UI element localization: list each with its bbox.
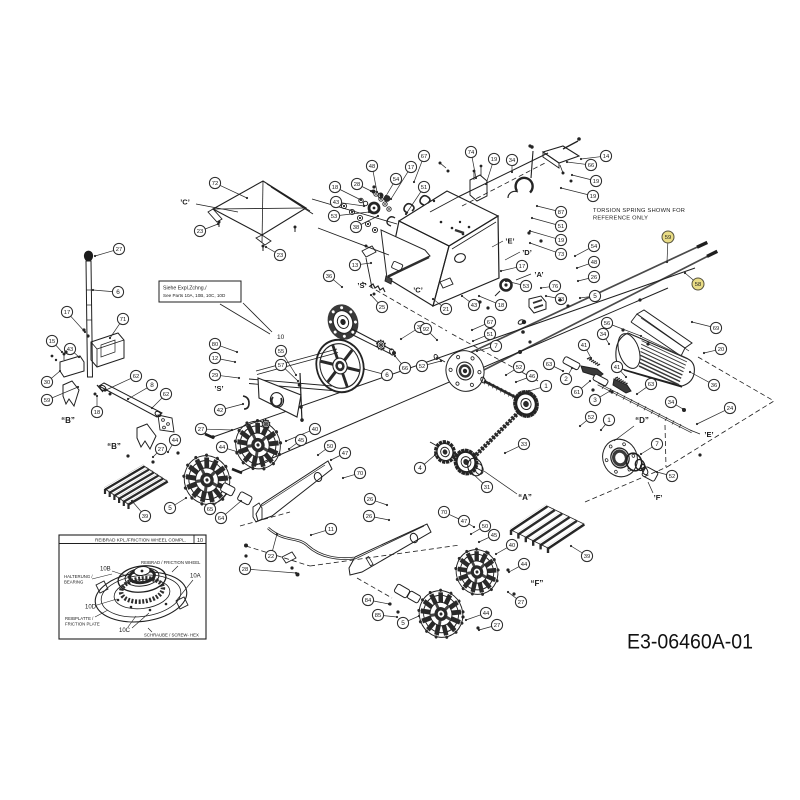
- svg-text:’E’: ’E’: [704, 430, 713, 439]
- svg-text:REIBRAD / FRICTION WHEEL: REIBRAD / FRICTION WHEEL: [141, 560, 201, 565]
- svg-text:’A’: ’A’: [534, 270, 543, 279]
- svg-text:54: 54: [591, 244, 598, 250]
- svg-text:25: 25: [379, 305, 385, 311]
- svg-text:63: 63: [648, 382, 654, 388]
- svg-text:44: 44: [219, 445, 226, 451]
- svg-text:10A: 10A: [190, 574, 201, 580]
- svg-text:44: 44: [521, 562, 528, 568]
- svg-text:36: 36: [711, 383, 717, 389]
- svg-text:20: 20: [718, 347, 724, 353]
- svg-text:66: 66: [402, 366, 408, 372]
- svg-text:40: 40: [312, 427, 318, 433]
- svg-text:48: 48: [369, 164, 375, 170]
- svg-text:30: 30: [44, 380, 50, 386]
- svg-text:17: 17: [64, 310, 70, 316]
- svg-text:15: 15: [49, 339, 55, 345]
- svg-text:52: 52: [669, 474, 675, 480]
- svg-text:69: 69: [713, 326, 719, 332]
- svg-text:71: 71: [120, 317, 126, 323]
- svg-text:17: 17: [408, 165, 414, 171]
- svg-text:’F’: ’F’: [654, 493, 663, 502]
- svg-text:22: 22: [268, 554, 274, 560]
- svg-text:76: 76: [552, 284, 558, 290]
- svg-text:REIBRAD KPL./FRICTION WHEEL CO: REIBRAD KPL./FRICTION WHEEL COMPL.: [95, 538, 186, 543]
- svg-text:10: 10: [277, 334, 285, 341]
- svg-text:52: 52: [419, 364, 425, 370]
- svg-text:73: 73: [558, 252, 564, 258]
- svg-text:53: 53: [331, 214, 337, 220]
- svg-text:5: 5: [593, 293, 597, 300]
- svg-text:31: 31: [484, 485, 490, 491]
- svg-text:E3-06460A-01: E3-06460A-01: [627, 630, 753, 654]
- svg-text:3: 3: [593, 397, 597, 404]
- svg-text:18: 18: [94, 410, 100, 416]
- svg-text:41: 41: [614, 365, 620, 371]
- svg-text:29: 29: [212, 373, 218, 379]
- svg-text:59: 59: [665, 235, 671, 241]
- svg-text:62: 62: [133, 374, 139, 380]
- svg-text:23: 23: [277, 253, 283, 259]
- svg-text:39: 39: [142, 514, 148, 520]
- svg-text:44: 44: [172, 438, 179, 444]
- svg-text:10: 10: [197, 538, 203, 544]
- svg-text:10B: 10B: [100, 567, 111, 573]
- svg-text:“A”: “A”: [518, 493, 532, 502]
- svg-text:26: 26: [366, 514, 372, 520]
- svg-text:85: 85: [375, 613, 381, 619]
- svg-text:’D’: ’D’: [522, 248, 532, 257]
- svg-text:43: 43: [333, 200, 339, 206]
- svg-text:46: 46: [529, 374, 535, 380]
- svg-text:44: 44: [483, 611, 490, 617]
- svg-text:34: 34: [600, 332, 607, 338]
- svg-text:“B”: “B”: [61, 416, 75, 425]
- svg-text:24: 24: [727, 406, 734, 412]
- svg-text:FRICTION PLATE: FRICTION PLATE: [65, 622, 100, 627]
- svg-text:47: 47: [461, 519, 467, 525]
- svg-text:17: 17: [519, 264, 525, 270]
- svg-text:67: 67: [487, 320, 493, 326]
- svg-text:66: 66: [588, 163, 594, 169]
- svg-text:’S’: ’S’: [357, 281, 366, 290]
- svg-text:47: 47: [342, 451, 348, 457]
- svg-text:70: 70: [441, 510, 447, 516]
- svg-text:27: 27: [116, 247, 122, 253]
- svg-text:28: 28: [242, 567, 248, 573]
- svg-text:19: 19: [593, 179, 599, 185]
- svg-text:36: 36: [326, 274, 332, 280]
- svg-text:13: 13: [352, 263, 358, 269]
- svg-text:43: 43: [471, 303, 477, 309]
- svg-text:92: 92: [423, 327, 429, 333]
- svg-text:45: 45: [298, 438, 304, 444]
- svg-text:5: 5: [401, 620, 405, 627]
- svg-text:“B”: “B”: [107, 442, 121, 451]
- svg-text:72: 72: [212, 181, 218, 187]
- svg-text:51: 51: [558, 224, 564, 230]
- svg-text:10C: 10C: [119, 628, 131, 634]
- svg-text:40: 40: [509, 543, 515, 549]
- svg-text:54: 54: [393, 177, 400, 183]
- svg-text:52: 52: [516, 365, 522, 371]
- svg-text:38: 38: [353, 225, 359, 231]
- svg-text:Siehe Expl.Zchng./: Siehe Expl.Zchng./: [163, 286, 207, 292]
- svg-text:“F”: “F”: [531, 579, 544, 588]
- svg-text:48: 48: [591, 260, 597, 266]
- svg-text:19: 19: [558, 238, 564, 244]
- svg-text:64: 64: [218, 516, 225, 522]
- svg-text:7: 7: [494, 343, 498, 350]
- svg-text:18: 18: [498, 303, 504, 309]
- svg-text:67: 67: [421, 154, 427, 160]
- svg-text:45: 45: [491, 533, 497, 539]
- svg-text:7: 7: [655, 441, 659, 448]
- svg-text:51: 51: [487, 332, 493, 338]
- svg-text:34: 34: [668, 400, 675, 406]
- svg-text:59: 59: [44, 398, 50, 404]
- svg-text:REIBPLATTE /: REIBPLATTE /: [65, 616, 94, 621]
- svg-text:58: 58: [695, 282, 701, 288]
- svg-text:26: 26: [367, 497, 373, 503]
- svg-text:55: 55: [278, 349, 284, 355]
- svg-text:’C’: ’C’: [180, 198, 190, 207]
- svg-text:87: 87: [558, 210, 564, 216]
- svg-text:39: 39: [584, 554, 590, 560]
- svg-text:51: 51: [421, 185, 427, 191]
- svg-text:27: 27: [494, 623, 500, 629]
- svg-text:5: 5: [168, 505, 172, 512]
- svg-text:’S’: ’S’: [214, 384, 223, 393]
- svg-text:80: 80: [212, 342, 218, 348]
- svg-text:18: 18: [332, 185, 338, 191]
- svg-text:REFERENCE ONLY: REFERENCE ONLY: [593, 216, 648, 222]
- svg-text:27: 27: [158, 447, 164, 453]
- svg-text:See Parts 10A, 10B, 10C, 10D: See Parts 10A, 10B, 10C, 10D: [163, 293, 226, 298]
- svg-text:57: 57: [278, 363, 284, 369]
- svg-text:42: 42: [217, 408, 223, 414]
- svg-text:4: 4: [418, 465, 422, 472]
- svg-text:SCHRAUBE / SCREW- HEX: SCHRAUBE / SCREW- HEX: [144, 633, 199, 638]
- svg-text:23: 23: [197, 229, 203, 235]
- svg-text:BEARING: BEARING: [64, 580, 84, 585]
- svg-text:19: 19: [491, 157, 497, 163]
- svg-text:HALTERUNG /: HALTERUNG /: [64, 574, 93, 579]
- svg-text:50: 50: [482, 524, 488, 530]
- svg-text:63: 63: [546, 362, 552, 368]
- svg-text:27: 27: [518, 600, 524, 606]
- svg-text:21: 21: [443, 307, 449, 313]
- svg-text:33: 33: [521, 442, 527, 448]
- svg-text:34: 34: [509, 158, 516, 164]
- svg-text:’C’: ’C’: [413, 286, 423, 295]
- svg-text:28: 28: [354, 182, 360, 188]
- svg-text:6: 6: [385, 372, 389, 379]
- svg-text:2: 2: [564, 376, 568, 383]
- svg-text:’E’: ’E’: [505, 237, 514, 246]
- svg-text:6: 6: [116, 289, 120, 296]
- svg-text:TORSION SPRING SHOWN FOR: TORSION SPRING SHOWN FOR: [593, 208, 685, 214]
- svg-text:1: 1: [607, 417, 611, 424]
- svg-text:70: 70: [357, 471, 363, 477]
- svg-text:74: 74: [468, 150, 475, 156]
- svg-text:“D”: “D”: [635, 416, 649, 425]
- svg-text:43: 43: [67, 347, 73, 353]
- svg-text:12: 12: [212, 356, 218, 362]
- svg-text:56: 56: [604, 321, 610, 327]
- svg-text:41: 41: [581, 343, 587, 349]
- svg-text:26: 26: [591, 275, 597, 281]
- svg-text:61: 61: [574, 390, 580, 396]
- svg-text:50: 50: [327, 444, 333, 450]
- svg-text:27: 27: [198, 427, 204, 433]
- svg-text:53: 53: [523, 284, 529, 290]
- svg-text:1: 1: [544, 383, 548, 390]
- svg-text:14: 14: [603, 154, 610, 160]
- svg-text:62: 62: [163, 392, 169, 398]
- svg-text:84: 84: [365, 598, 372, 604]
- svg-text:10D: 10D: [85, 605, 97, 611]
- svg-text:65: 65: [207, 507, 213, 513]
- svg-text:11: 11: [328, 527, 334, 533]
- svg-text:19: 19: [590, 194, 596, 200]
- svg-text:8: 8: [150, 382, 154, 389]
- svg-text:52: 52: [588, 415, 594, 421]
